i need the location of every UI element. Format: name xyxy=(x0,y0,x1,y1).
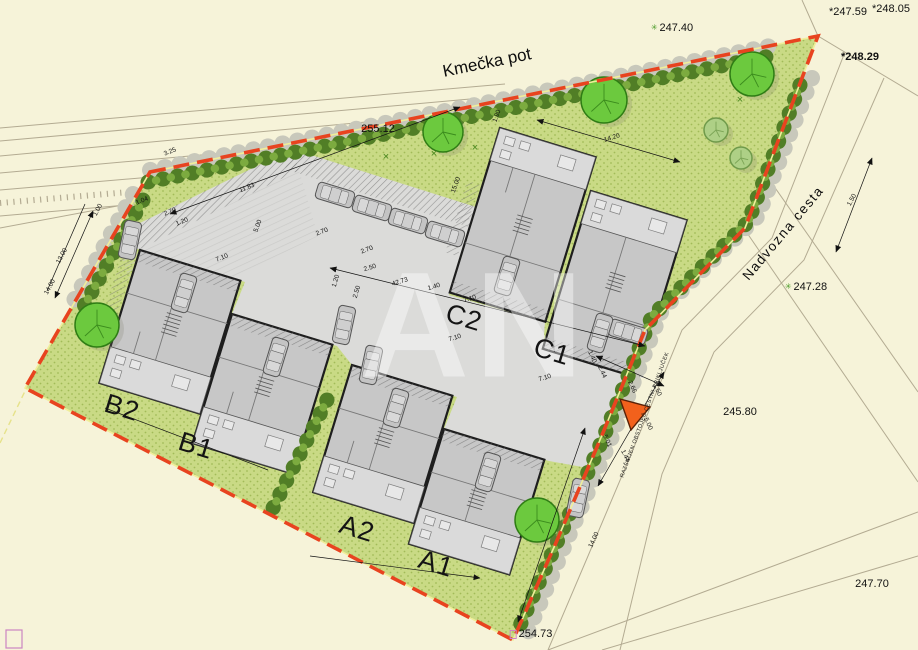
boundary-extension xyxy=(0,387,27,443)
lawn-x-mark: × xyxy=(472,142,478,154)
lawn-x-mark: × xyxy=(383,151,389,163)
site-plan: ××××× AN Kmečka pot Nadvozna cesta RAZŠI… xyxy=(0,0,918,650)
lawn-x-mark: × xyxy=(737,94,743,106)
site-plan-canvas: ××××× xyxy=(0,0,918,650)
lawn-x-mark: × xyxy=(431,148,437,160)
survey-rectangle xyxy=(6,630,22,648)
